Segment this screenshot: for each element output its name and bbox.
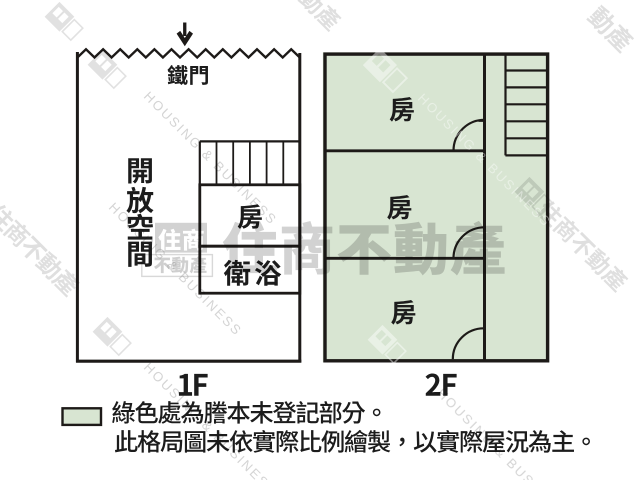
svg-text:HOUSING & BUSINESS: HOUSING & BUSINESS — [141, 360, 280, 480]
svg-text:HOUSING & BUSINESS: HOUSING & BUSINESS — [106, 200, 245, 339]
svg-text:HOUSING & BUSINESS: HOUSING & BUSINESS — [141, 89, 280, 228]
